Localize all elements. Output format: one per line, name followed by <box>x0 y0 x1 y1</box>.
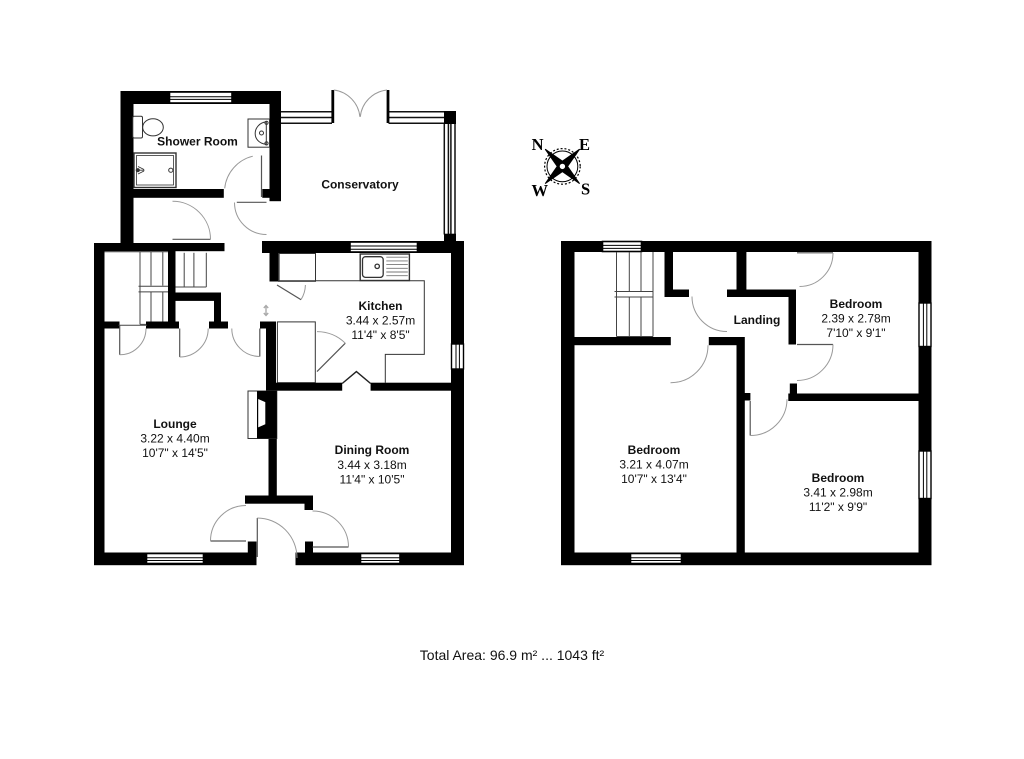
svg-text:Kitchen: Kitchen <box>358 299 402 313</box>
svg-text:3.41 x 2.98m: 3.41 x 2.98m <box>803 486 872 500</box>
svg-text:Landing: Landing <box>734 313 781 327</box>
svg-text:3.44 x 2.57m: 3.44 x 2.57m <box>346 314 415 328</box>
svg-text:10'7" x 14'5": 10'7" x 14'5" <box>142 446 208 460</box>
svg-text:11'4" x 8'5": 11'4" x 8'5" <box>351 328 409 342</box>
svg-text:11'4" x 10'5": 11'4" x 10'5" <box>340 473 405 487</box>
svg-text:Shower Room: Shower Room <box>157 135 238 149</box>
svg-text:3.44 x 3.18m: 3.44 x 3.18m <box>337 458 406 472</box>
svg-text:Lounge: Lounge <box>153 417 197 431</box>
svg-text:Total Area: 96.9 m² ... 1043 f: Total Area: 96.9 m² ... 1043 ft² <box>420 647 605 663</box>
svg-text:3.21 x 4.07m: 3.21 x 4.07m <box>619 458 688 472</box>
svg-text:Dining Room: Dining Room <box>335 443 410 457</box>
svg-text:W: W <box>532 181 549 200</box>
svg-text:Bedroom: Bedroom <box>830 297 883 311</box>
svg-text:Bedroom: Bedroom <box>628 443 681 457</box>
svg-text:N: N <box>532 135 544 154</box>
svg-text:S: S <box>581 179 590 198</box>
svg-text:Conservatory: Conservatory <box>321 177 399 191</box>
svg-text:3.22 x 4.40m: 3.22 x 4.40m <box>140 432 209 446</box>
svg-text:11'2" x 9'9": 11'2" x 9'9" <box>809 500 867 514</box>
svg-text:10'7" x 13'4": 10'7" x 13'4" <box>621 472 687 486</box>
svg-text:2.39 x 2.78m: 2.39 x 2.78m <box>821 312 890 326</box>
svg-text:E: E <box>579 135 590 154</box>
svg-text:Bedroom: Bedroom <box>812 471 865 485</box>
svg-text:7'10" x 9'1": 7'10" x 9'1" <box>826 326 885 340</box>
